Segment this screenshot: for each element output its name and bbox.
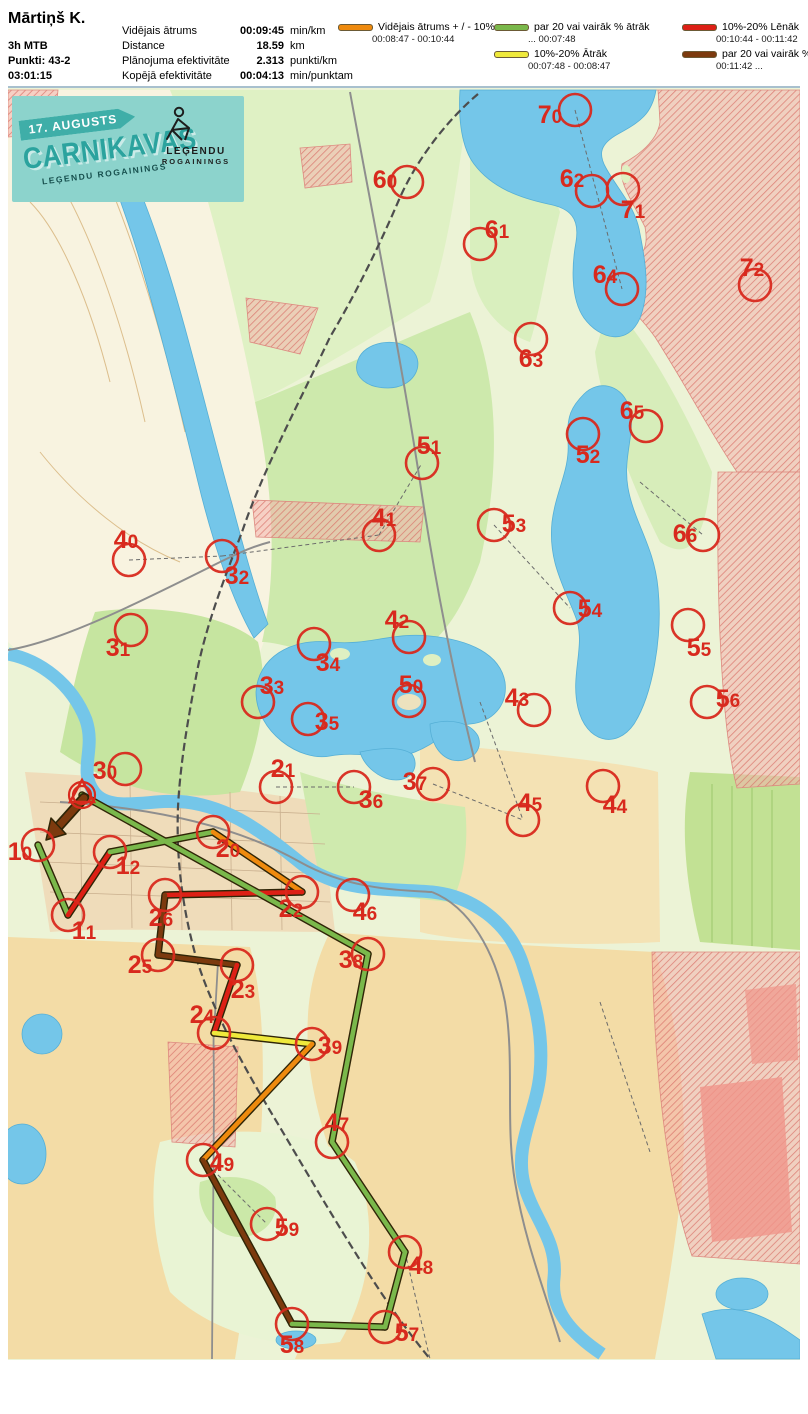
map-area: 7060616271647263655152403241536631344254… [8,86,800,1360]
legend-range: 00:07:48 - 00:08:47 [494,61,678,72]
event-banner: 17. AUGUSTS CARNIKAVAS LEĢENDU ROGAINING… [12,96,244,202]
runner-name: Mārtiņš K. [8,10,85,28]
legend-column-2: par 20 vai vairāk % ātrāk... 00:07:4810%… [494,21,678,75]
logo-line2: ROGAININGS [158,157,234,166]
stat-label: Vidējais ātrums [122,25,238,37]
total-time: 03:01:15 [8,69,70,84]
route-segment-58-57 [292,1324,385,1327]
orienteering-map: 7060616271647263655152403241536631344254… [8,88,800,1360]
stat-value: 00:04:13 [238,70,290,82]
legend-range: ... 00:07:48 [494,34,678,45]
legend-item: par 20 vai vairāk % lēnāk00:11:42 ... [682,48,808,72]
legend-item: 10%-20% Lēnāk00:10:44 - 00:11:42 [682,21,808,45]
legend-range: 00:11:42 ... [682,61,808,72]
legend-swatch [682,51,717,58]
legend-swatch [494,24,529,31]
legend-label: par 20 vai vairāk % ātrāk [534,21,650,33]
legend-column-3: 10%-20% Lēnāk00:10:44 - 00:11:42par 20 v… [682,21,808,75]
report-header: Mārtiņš K. 3h MTB Punkti: 43-2 03:01:15 … [0,0,808,86]
event-summary: 3h MTB Punkti: 43-2 03:01:15 [8,39,70,84]
legend-range: 00:10:44 - 00:11:42 [682,34,808,45]
stat-unit: min/punktam [290,70,380,82]
stat-value: 18.59 [238,40,290,52]
class-label: 3h MTB [8,39,70,54]
points-label: Punkti: 43-2 [8,54,70,69]
legend-swatch [338,24,373,31]
legend-column-1: Vidējais ātrums + / - 10%00:08:47 - 00:1… [338,21,490,48]
legend-item: Vidējais ātrums + / - 10%00:08:47 - 00:1… [338,21,490,45]
stat-value: 2.313 [238,55,290,67]
legend-swatch [682,24,717,31]
stat-unit: punkti/km [290,55,380,67]
legend-label: 10%-20% Lēnāk [722,21,799,33]
legend-swatch [494,51,529,58]
legend-label: Vidējais ātrums + / - 10% [378,21,495,33]
legend-item: par 20 vai vairāk % ātrāk... 00:07:48 [494,21,678,45]
rider-icon [158,106,198,144]
legend-range: 00:08:47 - 00:10:44 [338,34,490,45]
legend-label: 10%-20% Ātrāk [534,48,607,60]
logo-line1: LEĢENDU [158,146,234,157]
organizer-logo: LEĢENDU ROGAININGS [158,106,234,166]
stat-label: Plānojuma efektivitāte [122,55,238,67]
legend-item: 10%-20% Ātrāk00:07:48 - 00:08:47 [494,48,678,72]
stat-label: Kopējā efektivitāte [122,70,238,82]
stat-value: 00:09:45 [238,25,290,37]
stat-label: Distance [122,40,238,52]
legend-label: par 20 vai vairāk % lēnāk [722,48,808,60]
